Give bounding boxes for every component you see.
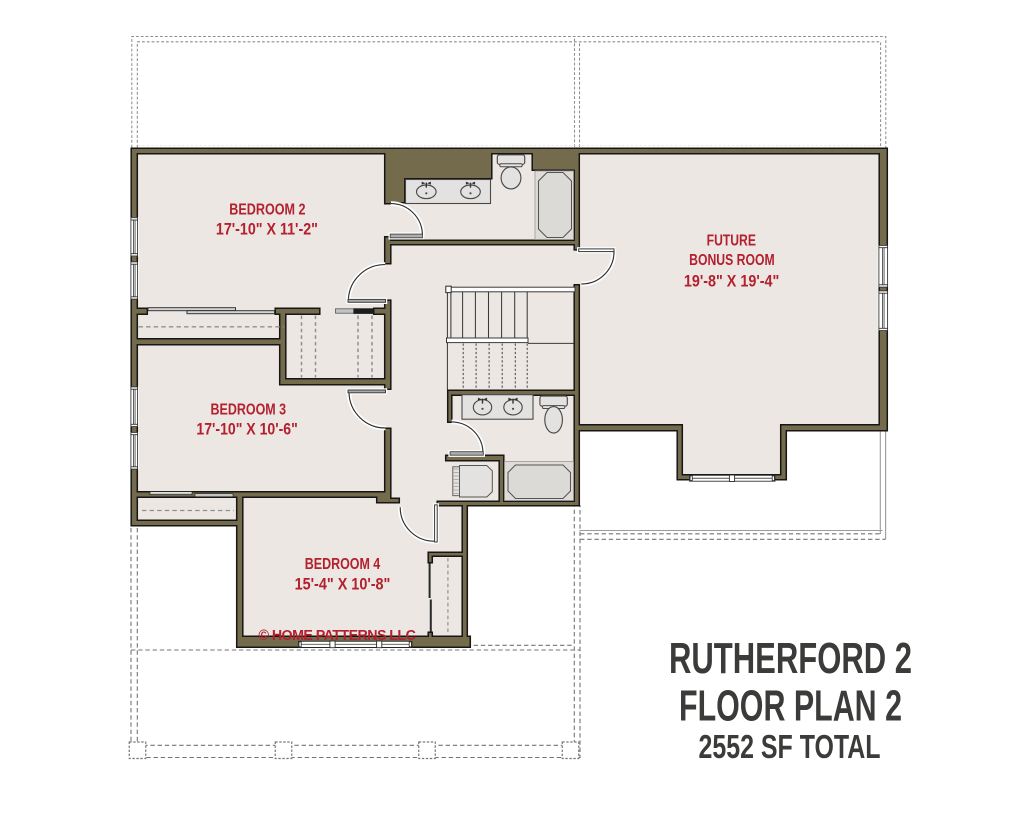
- svg-text:FUTURE: FUTURE: [707, 233, 757, 250]
- svg-text:17'-10" X 11'-2": 17'-10" X 11'-2": [216, 220, 318, 238]
- svg-text:2552 SF TOTAL: 2552 SF TOTAL: [699, 728, 881, 765]
- svg-text:17'-10" X 10'-6": 17'-10" X 10'-6": [196, 420, 297, 438]
- svg-text:© HOME PATTERNS LLC: © HOME PATTERNS LLC: [259, 628, 416, 644]
- svg-text:15'-4" X 10'-8": 15'-4" X 10'-8": [295, 575, 391, 593]
- svg-text:BEDROOM 4: BEDROOM 4: [305, 556, 381, 573]
- svg-text:BONUS ROOM: BONUS ROOM: [689, 252, 775, 269]
- svg-text:RUTHERFORD 2: RUTHERFORD 2: [669, 634, 912, 683]
- svg-text:BEDROOM 3: BEDROOM 3: [211, 401, 287, 418]
- svg-text:19'-8" X 19'-4": 19'-8" X 19'-4": [684, 273, 780, 291]
- svg-text:BEDROOM 2: BEDROOM 2: [229, 201, 305, 218]
- svg-text:FLOOR PLAN 2: FLOOR PLAN 2: [679, 682, 902, 731]
